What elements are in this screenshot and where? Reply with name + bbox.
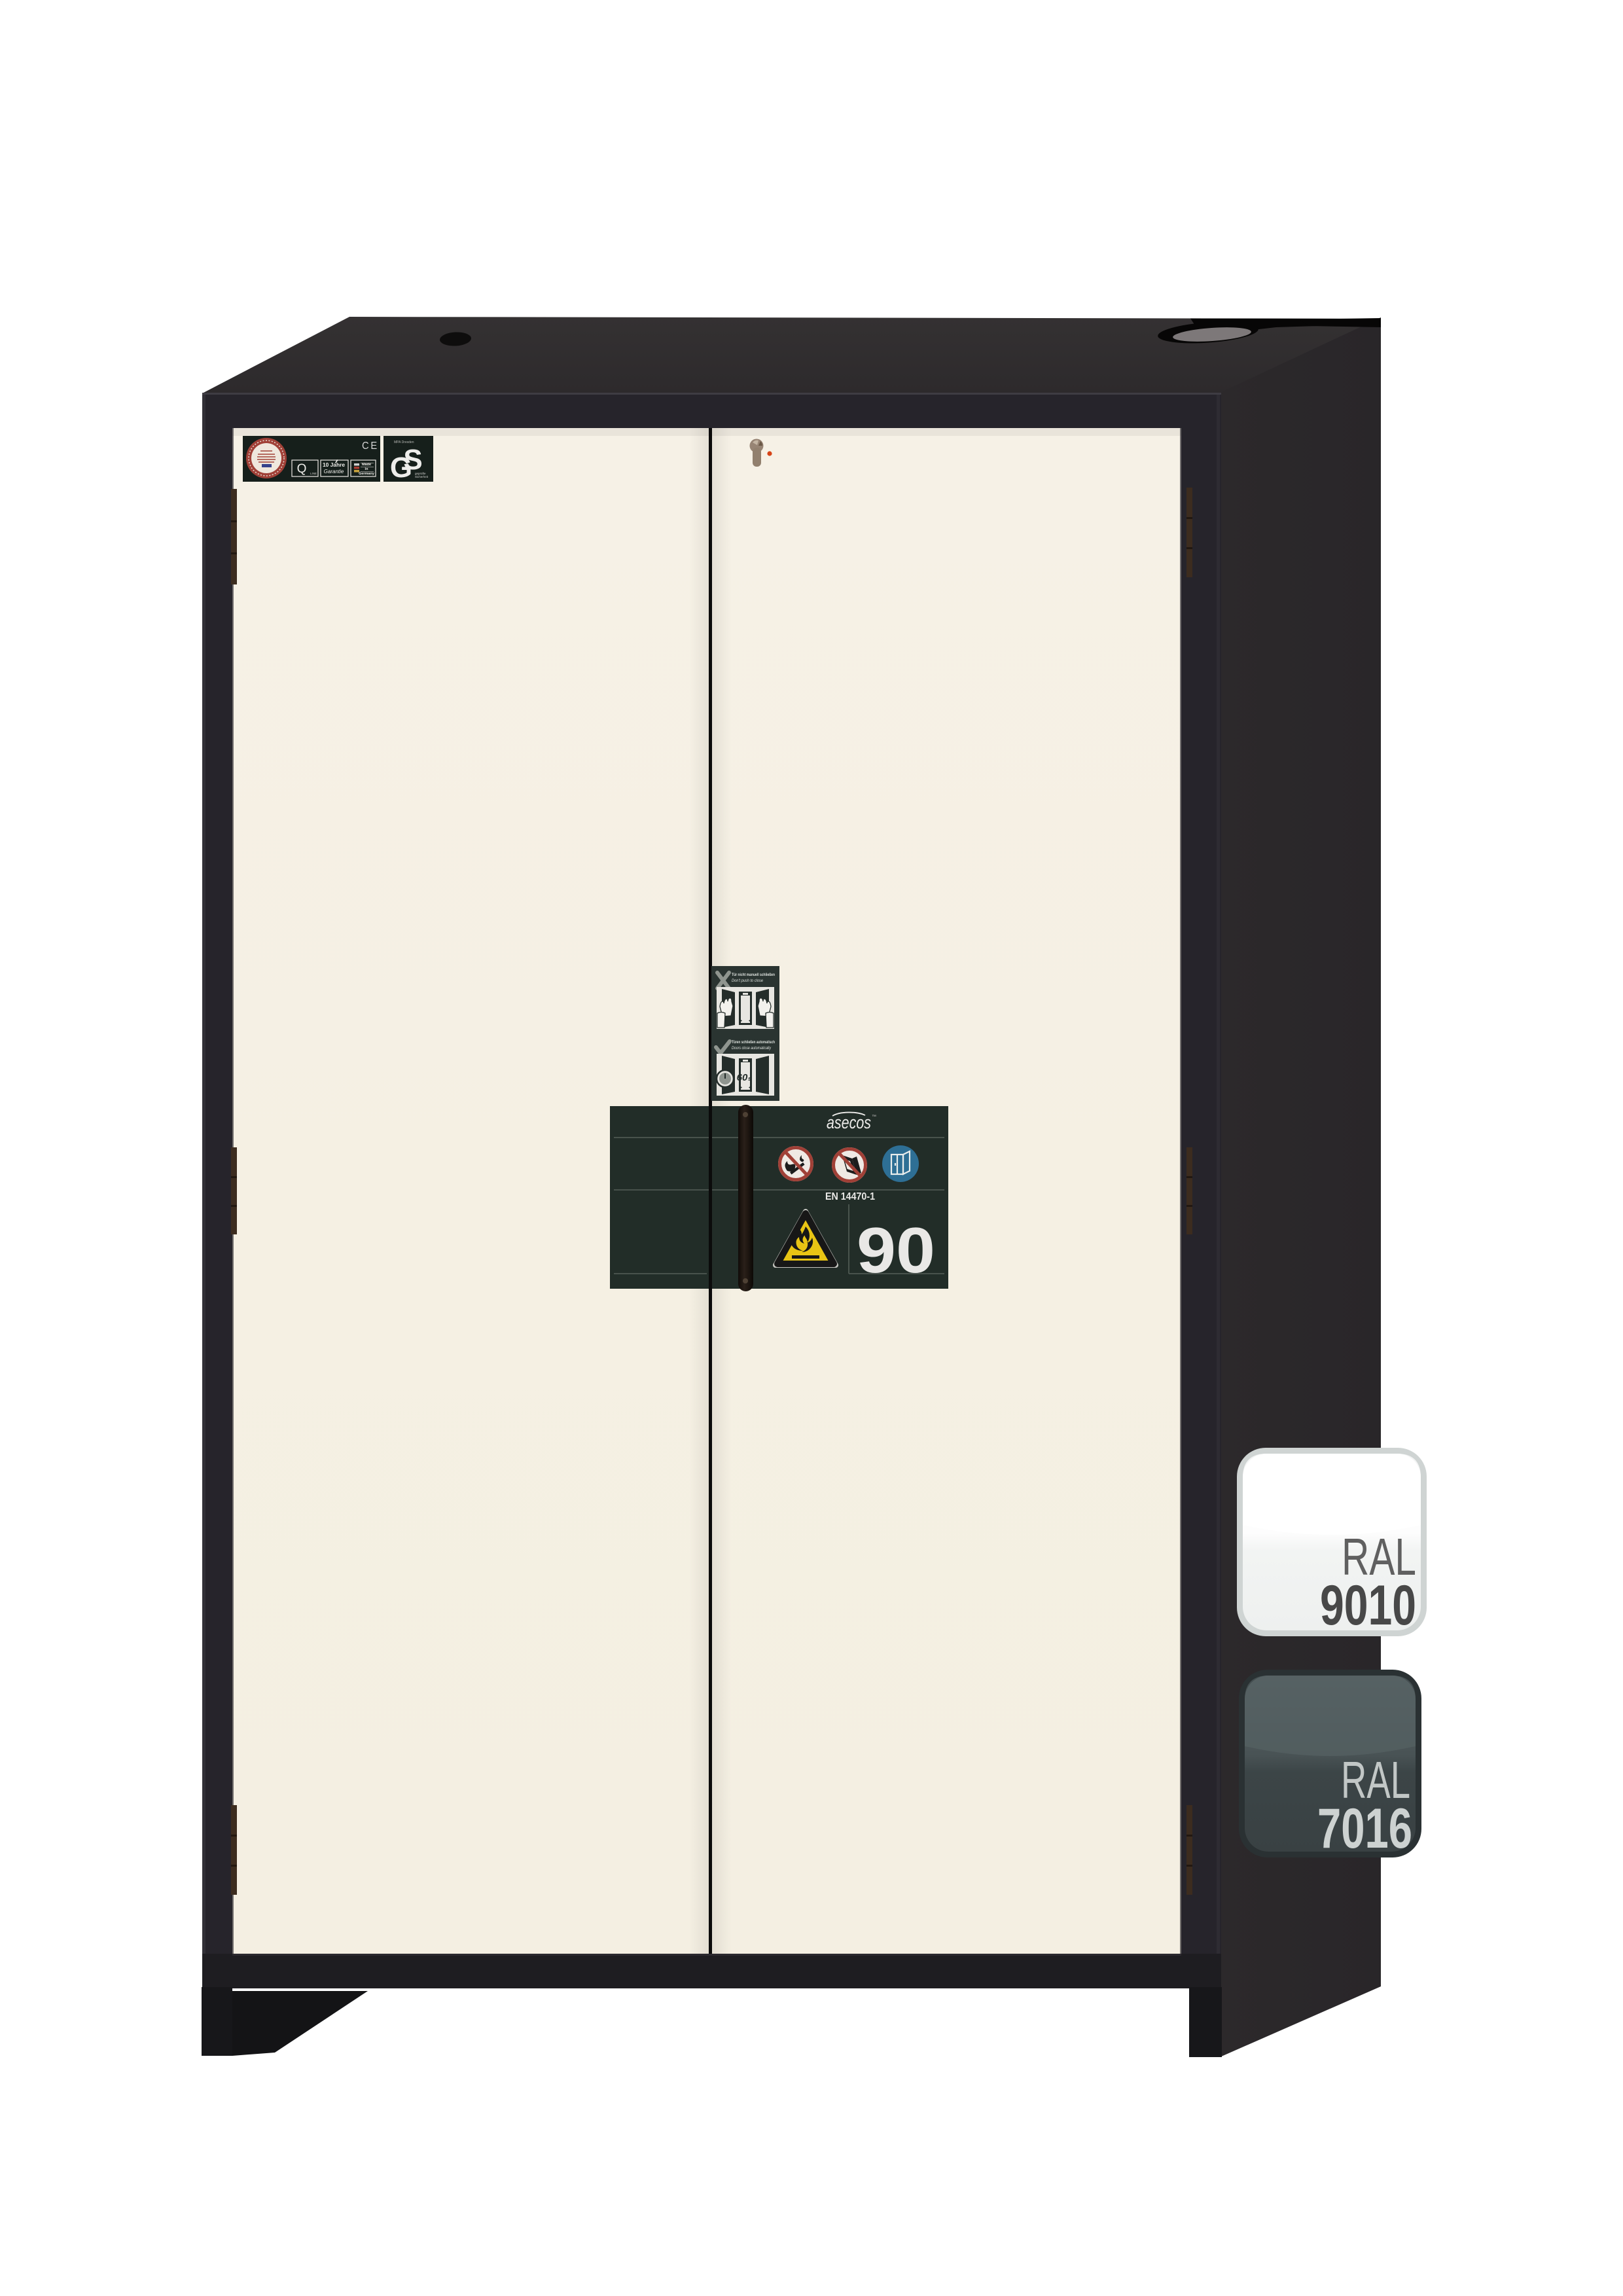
svg-text:MPA Dresden: MPA Dresden — [394, 440, 414, 444]
svg-text:60: 60 — [737, 1072, 748, 1083]
svg-text:Garantie: Garantie — [324, 469, 344, 475]
svg-text:Tür nicht manuell schließen: Tür nicht manuell schließen — [732, 973, 775, 977]
svg-text:Türen schließen automatisch: Türen schließen automatisch — [732, 1041, 775, 1045]
svg-text:™: ™ — [872, 1115, 876, 1119]
svg-text:90: 90 — [857, 1214, 935, 1286]
svg-text:s: s — [748, 1075, 751, 1082]
svg-text:Q: Q — [297, 462, 307, 476]
svg-text:10 Jahre: 10 Jahre — [323, 461, 345, 468]
svg-text:CE: CE — [362, 440, 379, 452]
svg-text:Made: Made — [362, 463, 371, 467]
svg-text:Don't push to close: Don't push to close — [732, 979, 764, 983]
svg-text:7016: 7016 — [1317, 1797, 1412, 1860]
svg-text:Doors close automatically: Doors close automatically — [732, 1047, 772, 1050]
svg-text:Sicherheit: Sicherheit — [415, 475, 429, 478]
svg-text:LINE: LINE — [310, 472, 317, 475]
svg-text:EN 14470-1: EN 14470-1 — [825, 1191, 875, 1202]
svg-text:S: S — [403, 444, 422, 476]
svg-text:in: in — [365, 467, 369, 471]
svg-text:9010: 9010 — [1320, 1574, 1416, 1637]
svg-text:Germany: Germany — [359, 472, 375, 476]
